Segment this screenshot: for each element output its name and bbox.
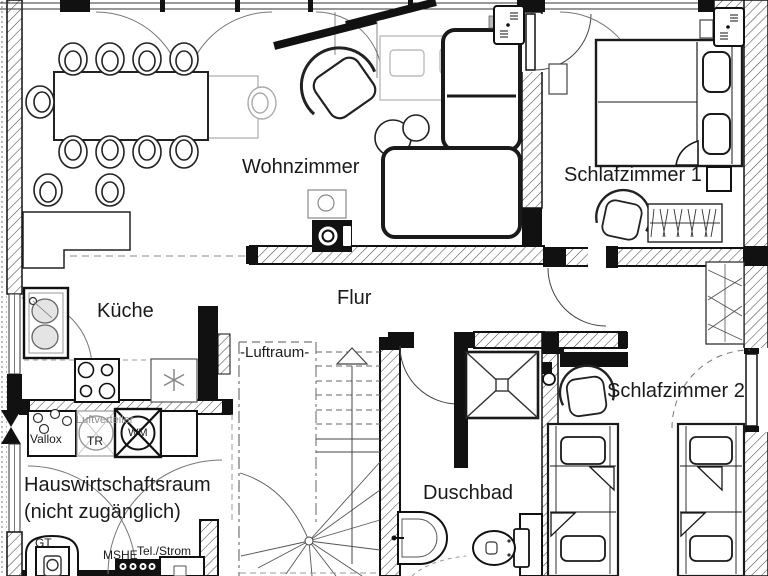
single-beds-left (548, 424, 618, 576)
freezer (151, 359, 197, 402)
wall-fixture (543, 373, 555, 385)
kitchen-sink (24, 288, 68, 358)
window-right-bedroom2 (746, 354, 757, 426)
room-label-duschbad: Duschbad (423, 482, 513, 505)
annotation-tel-strom: Tel./Strom (137, 544, 191, 558)
annotation-gt: GT (35, 536, 52, 550)
stove (75, 359, 119, 402)
wall-heater (549, 64, 567, 94)
double-bed (596, 40, 742, 166)
wood-stove (308, 190, 352, 252)
room-label-schlafzimmer2: Schlafzimmer 2 (607, 380, 745, 403)
door-bedroom1 (526, 14, 535, 70)
shower (466, 352, 538, 418)
room-label-flur: Flur (337, 287, 371, 310)
room-label-hauswirtschaftsraum: Hauswirtschaftsraum (nicht zugänglich) (24, 472, 211, 526)
annotation-mshe: MSHE (103, 548, 138, 562)
toilet (473, 529, 529, 567)
dining-table (54, 72, 208, 140)
shower-drain (496, 379, 508, 391)
washbasin (392, 512, 448, 564)
legend-box (707, 167, 731, 191)
room-label-kueche: Küche (97, 300, 154, 323)
room-label-wohnzimmer: Wohnzimmer (242, 156, 359, 179)
wardrobe-tall (706, 262, 744, 344)
insulation-band (0, 0, 7, 576)
annotation-wm: WM (128, 427, 148, 439)
floorplan: Wohnzimmer Schlafzimmer 1 Küche Flur -Lu… (0, 0, 768, 576)
desk (560, 352, 628, 367)
hwr-label-line1: Hauswirtschaftsraum (24, 472, 211, 499)
annotation-tr: TR (87, 434, 103, 448)
room-label-schlafzimmer1: Schlafzimmer 1 (564, 164, 702, 187)
single-beds-right (678, 424, 744, 576)
hwr-label-line2: (nicht zugänglich) (24, 499, 211, 526)
wardrobe (648, 204, 722, 242)
cabinet (161, 411, 197, 456)
ventilation-unit (489, 6, 524, 44)
wall-pier (60, 0, 90, 12)
tel-strom-box (160, 557, 204, 576)
door-stub (606, 246, 618, 268)
annotation-luftverteiler: Luftverteiler (76, 414, 133, 426)
annotation-vallox: Vallox (30, 432, 62, 446)
water-heater-gt (26, 536, 78, 576)
side-table (403, 115, 429, 141)
room-label-luftraum: -Luftraum- (240, 344, 309, 361)
